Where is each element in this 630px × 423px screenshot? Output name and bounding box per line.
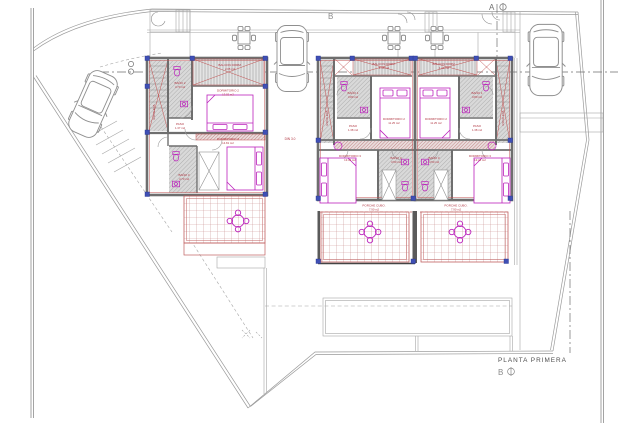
room-area: 11.25 m2	[430, 121, 442, 125]
car-icon	[527, 24, 566, 95]
villa-2-plan: BALCON DORM. 1.46 m2 BAÑO 1 3.80 m2 DORM…	[318, 58, 418, 264]
villa-3-terrace	[420, 212, 508, 262]
plan-title: PLANTA PRIMERA	[498, 357, 567, 364]
room-area: 14.81 m2	[222, 141, 234, 145]
room-area: 1.46 m2	[439, 66, 450, 70]
room-area: 4.70 m2	[179, 177, 190, 181]
room-area: 1.38 m2	[472, 128, 483, 132]
section-marker-a: A	[489, 3, 495, 12]
room-area: 1.37 m2	[175, 126, 186, 130]
bed-icon	[207, 95, 253, 131]
title-block: PLANTA PRIMERA B	[498, 357, 567, 377]
car-icon	[63, 67, 123, 142]
room-area: 13.44 m2	[474, 158, 486, 162]
villa-1-terrace	[184, 196, 265, 268]
room-area: 4.50 m2	[391, 160, 402, 164]
bed-icon	[380, 88, 410, 138]
site-dimension-note: DIN 3.0	[285, 137, 296, 141]
room-area: 13.02 m2	[222, 93, 234, 97]
room-label: ESCALERA	[152, 104, 156, 119]
bed-icon	[420, 88, 450, 138]
room-area: 1.38 m2	[348, 128, 359, 132]
bath3-floor	[169, 146, 197, 193]
car-icon	[274, 26, 310, 92]
room-area: 7.90 m2	[451, 208, 462, 212]
scale-mark-letter: B	[498, 368, 503, 377]
room-area: 1.46 m2	[379, 66, 390, 70]
closet-band	[335, 141, 413, 149]
villa-3-plan: BALCON DORM. 1.46 m2 BAÑO 1 3.80 m2 DORM…	[415, 58, 512, 262]
villa-2-terrace	[318, 211, 418, 264]
bed-icon	[474, 158, 510, 203]
room-label: ESCALERA	[325, 110, 329, 125]
bed-icon	[320, 158, 356, 203]
room-area: 13.44 m2	[344, 158, 356, 162]
room-area: 4.50 m2	[429, 160, 440, 164]
closet-band	[417, 141, 495, 149]
room-area: 2.05 m2	[225, 67, 236, 71]
floor-plan-drawing: A B	[0, 0, 630, 423]
villa-1-plan: BALCON DORM. 2.05 m2 BAÑO 2 4.70 m2 DORM…	[147, 58, 267, 268]
section-marker-b-top: B	[328, 12, 333, 21]
room-area: 4.70 m2	[175, 85, 186, 89]
room-area: 7.90 m2	[369, 208, 380, 212]
bed-icon	[227, 147, 263, 190]
room-area: 11.25 m2	[388, 121, 400, 125]
room-area: 3.80 m2	[472, 95, 483, 99]
room-label: ESCALERA	[501, 110, 505, 125]
room-area: 3.80 m2	[348, 95, 359, 99]
floor-plan-sheet: A B	[0, 0, 630, 423]
